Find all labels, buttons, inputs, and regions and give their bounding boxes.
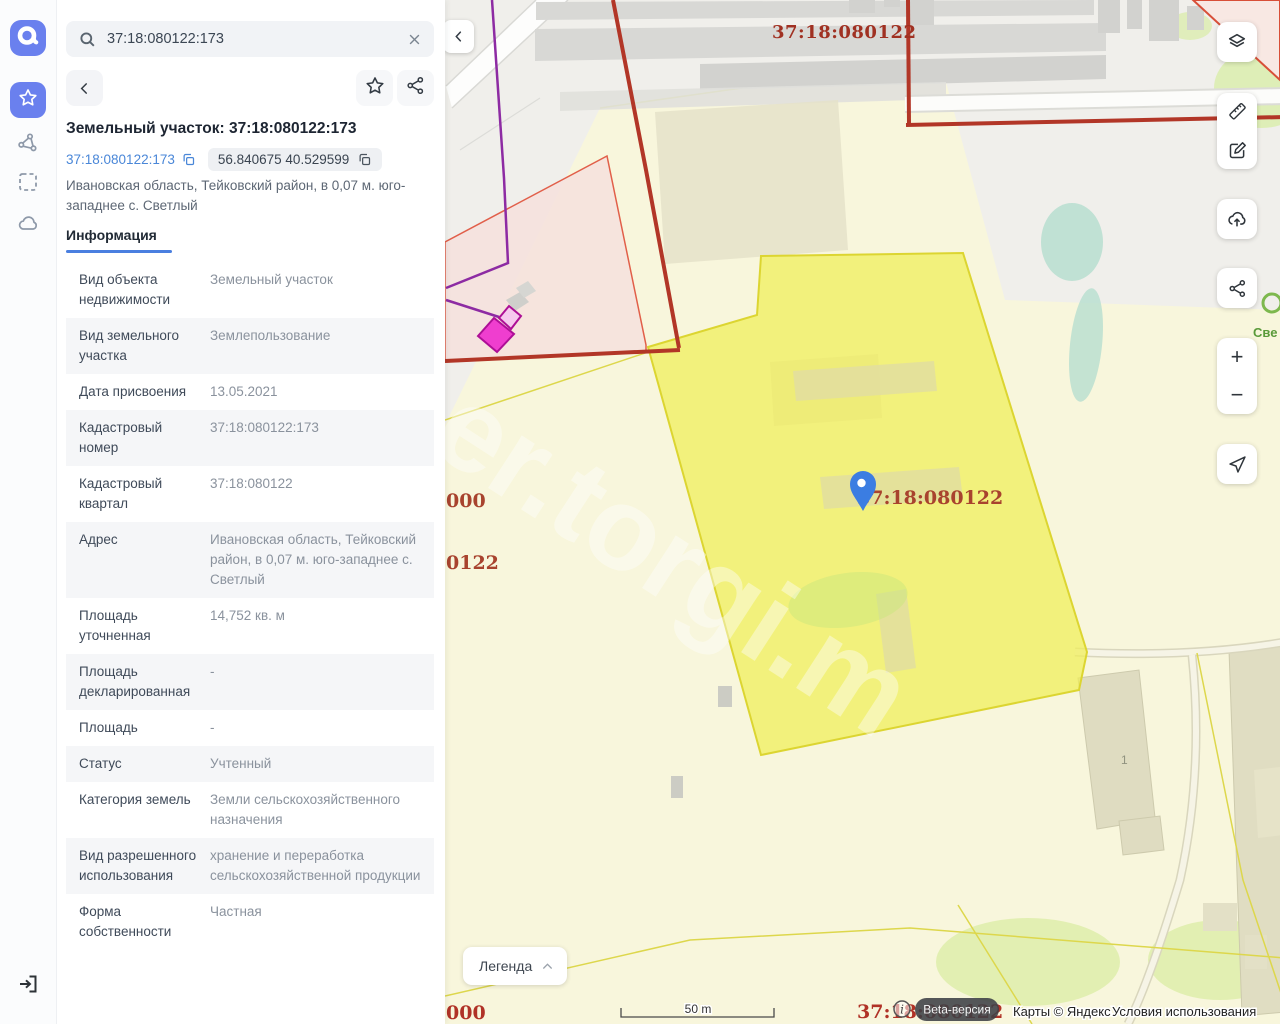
info-table: Вид объекта недвижимостиЗемельный участо… (66, 262, 434, 962)
edit-button[interactable] (1217, 131, 1257, 169)
svg-text:Beta-версия: Beta-версия (923, 1003, 990, 1017)
clear-search-icon[interactable] (395, 32, 434, 47)
table-row: Дата присвоения13.05.2021 (66, 374, 434, 410)
panel-header (66, 70, 434, 106)
share-map-button[interactable] (1217, 268, 1257, 308)
app-logo-icon (15, 23, 41, 54)
legend-button[interactable]: Легенда (463, 947, 567, 985)
row-label: Кадастровый квартал (79, 474, 210, 514)
quarter-label-top: 37:18:080122 (772, 22, 917, 43)
ruler-button[interactable] (1217, 93, 1257, 131)
row-label: Кадастровый номер (79, 418, 210, 458)
share-icon (1227, 278, 1248, 299)
layers-button[interactable] (1217, 22, 1257, 62)
row-label: Площадь декларированная (79, 662, 210, 702)
teal-vegetation (1041, 203, 1103, 281)
map-canvas[interactable]: er.torgi.m 37:18:080122 37:18:080122 000… (445, 0, 1280, 1024)
page-title: Земельный участок: 37:18:080122:173 (66, 120, 438, 138)
app-logo[interactable] (10, 20, 46, 56)
table-row: АдресИвановская область, Тейковский райо… (66, 522, 434, 598)
row-label: Статус (79, 754, 210, 774)
table-row: Вид разрешенного использованияхранение и… (66, 838, 434, 894)
zoom-control-group: + − (1217, 338, 1257, 414)
locate-button[interactable] (1217, 444, 1257, 484)
row-value: 13.05.2021 (210, 382, 434, 402)
search-bar (66, 21, 434, 57)
cloud-upload-icon (1226, 208, 1248, 230)
row-value: - (210, 718, 434, 738)
tab-information[interactable]: Информация (66, 227, 157, 243)
ruler-icon (1227, 102, 1248, 123)
map-attribution[interactable]: Карты © Яндекс (1013, 1004, 1111, 1019)
dashed-square-icon (16, 170, 40, 199)
address-text: Ивановская область, Тейковский район, в … (66, 176, 428, 216)
legend-label: Легенда (479, 958, 532, 974)
row-label: Категория земель (79, 790, 210, 830)
row-label: Площадь уточненная (79, 606, 210, 646)
sign-in-icon (16, 972, 40, 1001)
sidebar-item-favorites[interactable] (10, 82, 46, 118)
coordinates-text: 56.840675 40.529599 (218, 152, 349, 167)
row-value: - (210, 662, 434, 702)
table-row: Кадастровый квартал37:18:080122 (66, 466, 434, 522)
sidebar-item-sign-in[interactable] (16, 974, 40, 998)
cadastral-number-text: 37:18:080122:173 (66, 152, 175, 167)
search-input[interactable] (105, 30, 395, 48)
share-icon (405, 75, 426, 101)
row-label: Вид объекта недвижимости (79, 270, 210, 310)
table-row: Вид объекта недвижимостиЗемельный участо… (66, 262, 434, 318)
info-panel: Земельный участок: 37:18:080122:173 37:1… (56, 0, 445, 1024)
table-row: СтатусУчтенный (66, 746, 434, 782)
beta-badge: Beta-версия (915, 998, 999, 1021)
table-row: Форма собственностиЧастная (66, 894, 434, 950)
sidebar-item-area-select[interactable] (16, 172, 40, 196)
copy-icon[interactable] (181, 152, 196, 167)
row-label: Вид разрешенного использования (79, 846, 210, 886)
polygon-nodes-icon (16, 131, 40, 160)
terms-of-use-link[interactable]: Условия использования (1112, 1004, 1256, 1019)
collapse-panel-button[interactable] (445, 20, 474, 53)
map-base-layer: er.torgi.m 37:18:080122 37:18:080122 000… (445, 0, 1280, 1024)
zoom-in-button[interactable]: + (1217, 338, 1257, 376)
row-value: Землепользование (210, 326, 434, 366)
svg-text:000: 000 (446, 490, 486, 512)
table-row: Кадастровый номер37:18:080122:173 (66, 410, 434, 466)
table-row: Категория земельЗемли сельскохозяйственн… (66, 782, 434, 838)
search-icon (66, 30, 105, 49)
marker-label: 37:18:080122 (857, 487, 1003, 509)
row-value: Земли сельскохозяйственного назначения (210, 790, 434, 830)
row-value: Земельный участок (210, 270, 434, 310)
cloud-icon (16, 212, 40, 241)
row-label: Форма собственности (79, 902, 210, 942)
favorite-button[interactable] (356, 70, 393, 106)
star-icon (17, 87, 39, 114)
table-row: Вид земельного участкаЗемлепользование (66, 318, 434, 374)
table-row: Площадь декларированная- (66, 654, 434, 710)
back-button[interactable] (66, 70, 103, 106)
svg-text:0122: 0122 (446, 552, 499, 574)
building (655, 100, 848, 264)
row-value: 37:18:080122 (210, 474, 434, 514)
layers-icon (1226, 31, 1248, 53)
row-value: Ивановская область, Тейковский район, в … (210, 530, 434, 590)
cadastral-number-chip[interactable]: 37:18:080122:173 (66, 152, 196, 167)
row-value: 37:18:080122:173 (210, 418, 434, 458)
sidebar-item-polygon-tool[interactable] (16, 133, 40, 157)
table-row: Площадь уточненная14,752 кв. м (66, 598, 434, 654)
star-outline-icon (364, 75, 386, 102)
row-label: Дата присвоения (79, 382, 210, 402)
svg-text:i: i (900, 1003, 904, 1017)
row-value: хранение и переработка сельскохозяйствен… (210, 846, 434, 886)
zoom-out-button[interactable]: − (1217, 376, 1257, 414)
upload-button[interactable] (1217, 199, 1257, 239)
copy-icon[interactable] (357, 152, 372, 167)
row-label: Адрес (79, 530, 210, 590)
beta-info-icon[interactable]: i (894, 1001, 910, 1017)
tab-active-underline (66, 250, 172, 253)
scale-label: 50 m (685, 1002, 712, 1016)
row-value: 14,752 кв. м (210, 606, 434, 646)
svg-text:000: 000 (446, 1002, 486, 1024)
row-value: Учтенный (210, 754, 434, 774)
building-number-label: 1 (1121, 753, 1128, 767)
table-row: Площадь- (66, 710, 434, 746)
share-button[interactable] (397, 70, 434, 106)
icon-rail (0, 0, 57, 1024)
navigation-arrow-icon (1227, 454, 1248, 475)
row-label: Вид земельного участка (79, 326, 210, 366)
chips-row: 37:18:080122:173 56.840675 40.529599 (66, 147, 434, 171)
row-value: Частная (210, 902, 434, 942)
chevron-up-icon (541, 960, 554, 973)
edit-icon (1227, 140, 1248, 161)
measure-edit-group (1217, 93, 1257, 169)
sidebar-item-cloud[interactable] (16, 214, 40, 238)
row-label: Площадь (79, 718, 210, 738)
coordinates-chip[interactable]: 56.840675 40.529599 (208, 148, 382, 171)
